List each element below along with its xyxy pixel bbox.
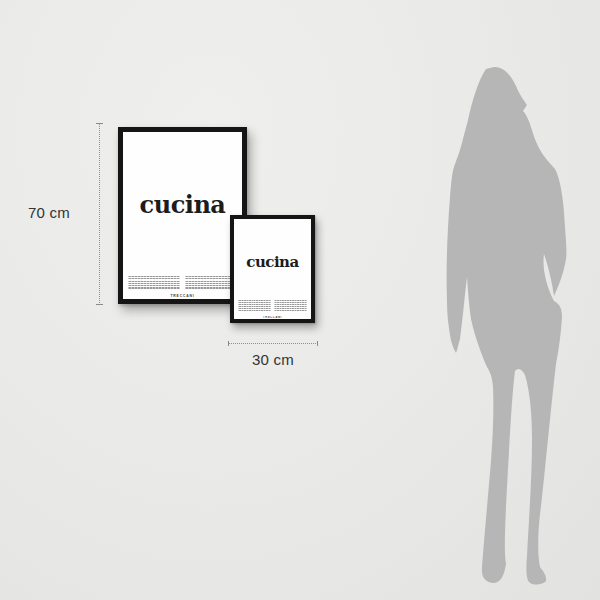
dimension-tick <box>228 341 229 346</box>
poster-frame-small: cucina TRECCANI <box>230 215 315 323</box>
poster-brand-large: TRECCANI <box>158 294 208 298</box>
dimension-tick <box>96 123 103 124</box>
height-dimension-line <box>99 123 100 305</box>
woman-silhouette-shape <box>447 67 567 585</box>
poster-brand-small: TRECCANI <box>260 316 285 319</box>
definition-text-block <box>238 300 271 311</box>
definition-text-block <box>128 276 180 289</box>
poster-large: cucina TRECCANI <box>123 132 242 299</box>
width-dimension-label: 30 cm <box>228 351 318 368</box>
definition-text-block <box>274 300 307 311</box>
width-dimension-line <box>228 343 318 344</box>
definition-text-columns-small <box>238 300 307 311</box>
poster-title-small: cucina <box>234 254 311 271</box>
dimension-tick <box>317 341 318 346</box>
poster-small: cucina TRECCANI <box>234 219 311 319</box>
woman-silhouette-icon <box>430 55 580 595</box>
dimension-tick <box>96 304 103 305</box>
poster-frame-large: cucina TRECCANI <box>118 127 247 304</box>
size-comparison-scene: 70 cm cucina TRECCANI cucina TRECCANI 30… <box>0 0 600 600</box>
poster-title-large: cucina <box>123 192 242 218</box>
height-dimension-label: 70 cm <box>28 204 70 221</box>
definition-text-columns-large <box>128 276 237 289</box>
